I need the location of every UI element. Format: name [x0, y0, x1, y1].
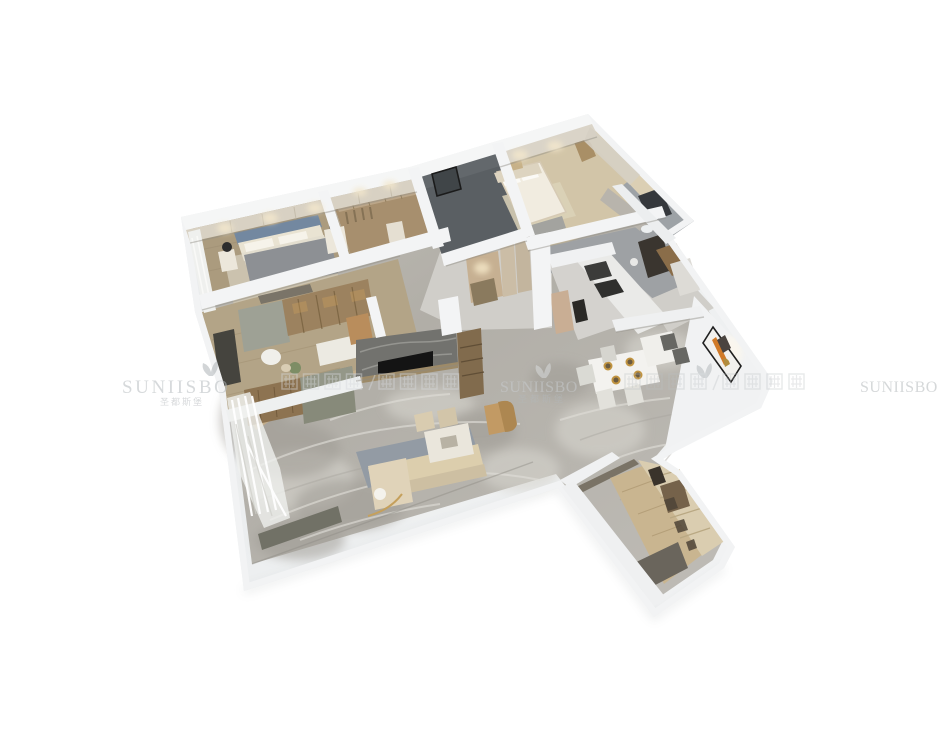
svg-text:圣都斯堡: 圣都斯堡 — [160, 396, 204, 407]
svg-text:SUNIISBO: SUNIISBO — [860, 379, 938, 396]
svg-text:SUNIISBO: SUNIISBO — [122, 377, 230, 398]
svg-text:圣都斯堡: 圣都斯堡 — [518, 393, 566, 404]
